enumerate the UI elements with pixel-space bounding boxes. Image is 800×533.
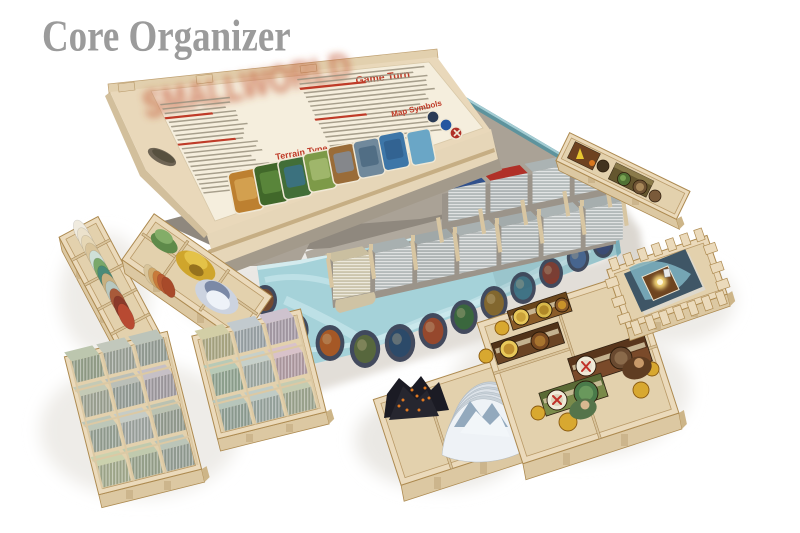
svg-text:Core Organizer: Core Organizer bbox=[42, 12, 291, 61]
